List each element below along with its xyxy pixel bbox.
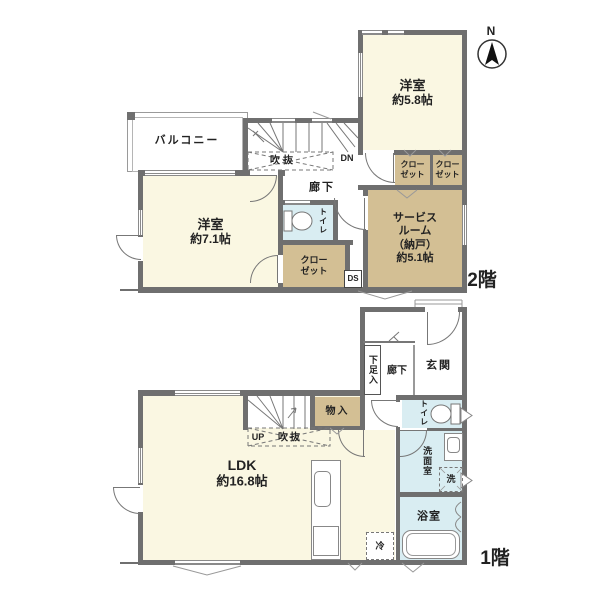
entrance-step-line — [413, 345, 415, 397]
north-label: N — [487, 25, 496, 39]
door-leaf — [371, 400, 398, 401]
room-service: サービス ルーム （納戸） 約5.1帖 — [368, 190, 462, 287]
balcony-label: バルコニー — [155, 135, 220, 148]
room-bedroom-5-8: 洋室 約5.8帖 — [363, 35, 462, 150]
ground-line — [120, 562, 138, 564]
door-leaf — [113, 487, 140, 488]
entrance-label: 玄関 — [426, 360, 452, 373]
room-closet-b: クロー ゼット — [433, 155, 462, 185]
washbasin-bowl — [447, 437, 460, 453]
room-label: （納戸） — [393, 239, 437, 252]
hallway-label-2f: 廊下 — [309, 182, 335, 195]
porch-lines — [415, 300, 462, 307]
void-label-1f: 吹抜 — [278, 432, 302, 444]
door-arc-entrance — [427, 312, 460, 345]
wall — [430, 155, 433, 188]
room-label: サービス — [393, 212, 437, 225]
wall — [243, 390, 248, 430]
door-leaf — [364, 198, 365, 230]
balcony-corner-post — [127, 112, 135, 120]
floor-label-2f: 2階 — [467, 270, 497, 292]
window — [362, 30, 382, 35]
wall — [462, 30, 467, 292]
floorplan: 洋室 約5.8帖 クロー ゼット クロー ゼット 洋室 約7.1帖 クロー ゼッ… — [0, 0, 600, 600]
wall — [243, 118, 248, 175]
down-label: DN — [341, 153, 354, 163]
wall — [310, 390, 315, 430]
staircase-1f-area — [248, 396, 310, 428]
window-balcony-sash — [145, 170, 235, 176]
closet-label: クロー — [436, 160, 460, 170]
bathtub-inner — [406, 533, 456, 556]
wall — [243, 118, 363, 123]
staircase-2f — [248, 123, 358, 152]
hallway-label-1f: 廊下 — [387, 365, 407, 377]
window — [388, 30, 404, 35]
room-closet-2f: クロー ゼット — [283, 245, 345, 287]
room-size: 約7.1帖 — [190, 232, 231, 246]
shoe-storage-label: 下足入 — [367, 355, 378, 385]
door-leaf — [277, 255, 278, 283]
washer-box: 洗 — [439, 467, 463, 492]
toilet-label-2f: トイレ — [318, 208, 327, 235]
window — [312, 118, 332, 123]
toilet-label-1f: トイレ — [419, 400, 428, 427]
duct-space-box: DS — [344, 270, 362, 288]
storage-label: 物入 — [326, 406, 350, 418]
door-leaf — [393, 153, 394, 183]
shoe-storage-box: 下足入 — [364, 345, 381, 395]
door-arc-bedroom71-exterior — [116, 235, 141, 260]
void-label-2f: 吹抜 — [270, 155, 296, 167]
door-leaf — [250, 175, 277, 176]
ground-line — [120, 289, 138, 291]
wall — [278, 240, 353, 245]
wall — [138, 287, 467, 293]
window — [285, 200, 310, 205]
wall — [345, 240, 350, 270]
ldk-label: LDK — [228, 457, 257, 473]
room-size: 約5.8帖 — [392, 93, 433, 107]
room-closet-a: クロー ゼット — [395, 155, 430, 185]
kitchen-sink — [314, 471, 331, 507]
closet-label: クロー — [300, 255, 327, 266]
window — [272, 118, 295, 123]
window — [462, 205, 467, 245]
doorway-gap — [278, 255, 283, 283]
kitchen-stove — [313, 526, 339, 556]
room-toilet-1f — [402, 400, 462, 428]
window — [175, 390, 240, 396]
closet-label: ゼット — [401, 170, 425, 180]
wall — [138, 390, 363, 396]
door-leaf — [427, 312, 428, 345]
washer-label: 洗 — [446, 474, 455, 485]
room-label: 洋室 — [197, 217, 223, 233]
room-size: 約5.1帖 — [396, 252, 433, 265]
closet-label: クロー — [401, 160, 425, 170]
door-leaf — [116, 235, 141, 236]
north-compass-icon — [478, 40, 506, 68]
refrigerator-box: 冷 — [366, 532, 394, 560]
bathroom-label: 浴室 — [417, 511, 441, 524]
wall — [396, 492, 467, 497]
window — [358, 53, 363, 97]
floor-label-1f: 1階 — [480, 548, 510, 570]
door-leaf — [400, 430, 427, 431]
window — [175, 560, 240, 565]
room-storage-1f: 物入 — [315, 397, 360, 426]
wall — [398, 395, 467, 400]
closet-label: ゼット — [300, 266, 327, 277]
door-arc-bedroom-5-8 — [365, 153, 395, 183]
door-leaf — [363, 430, 364, 457]
washroom-label: 洗面室 — [422, 446, 432, 476]
up-label: UP — [252, 432, 265, 442]
window — [138, 448, 143, 483]
door-arc-service-room — [334, 198, 366, 230]
window — [138, 210, 143, 235]
room-label: ルーム — [399, 225, 432, 238]
refrigerator-label: 冷 — [375, 541, 384, 552]
door-arc-ldk-exterior — [113, 487, 140, 514]
wall-thin — [363, 341, 415, 343]
room-label: 洋室 — [399, 78, 425, 94]
closet-label: ゼット — [436, 170, 460, 180]
ldk-size-label: 約16.8帖 — [216, 475, 267, 490]
duct-label: DS — [347, 274, 358, 284]
wall — [358, 185, 467, 190]
